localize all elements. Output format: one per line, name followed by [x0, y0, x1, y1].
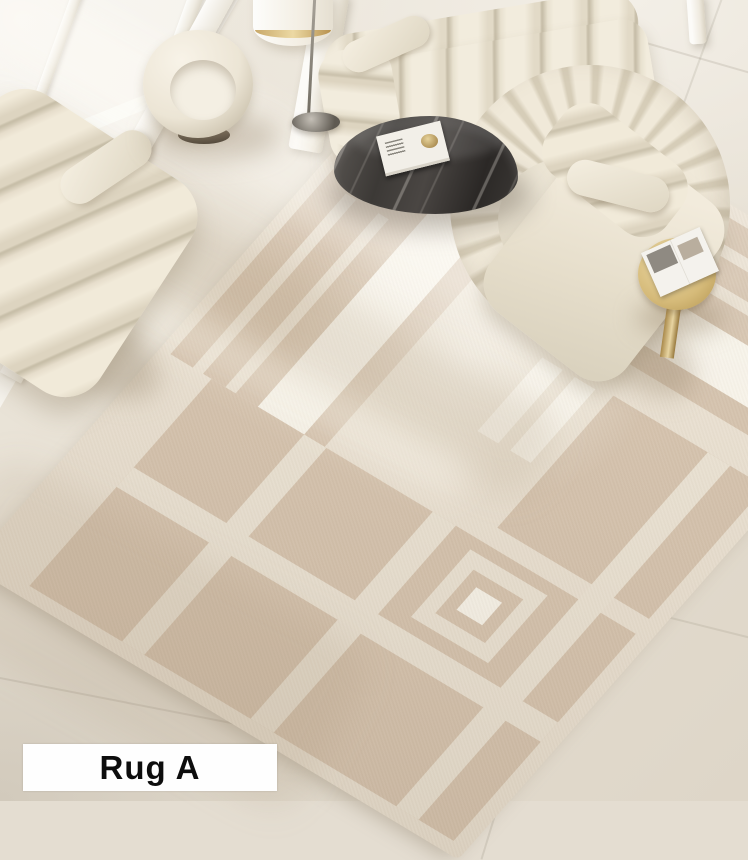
armchair-seat-cushion: [170, 60, 236, 120]
magazine-photo: [646, 245, 678, 274]
window-frame-column: [686, 0, 706, 45]
magazine-photo: [677, 237, 704, 261]
pedestal-stand: [253, 0, 333, 46]
floor-lamp-base: [292, 112, 340, 132]
book-text-lines: [385, 138, 406, 156]
pedestal-gold-band: [255, 30, 331, 38]
rug-label-text: Rug A: [100, 749, 201, 787]
rug-label-badge: Rug A: [23, 744, 277, 791]
gold-dish-on-book: [421, 134, 438, 148]
